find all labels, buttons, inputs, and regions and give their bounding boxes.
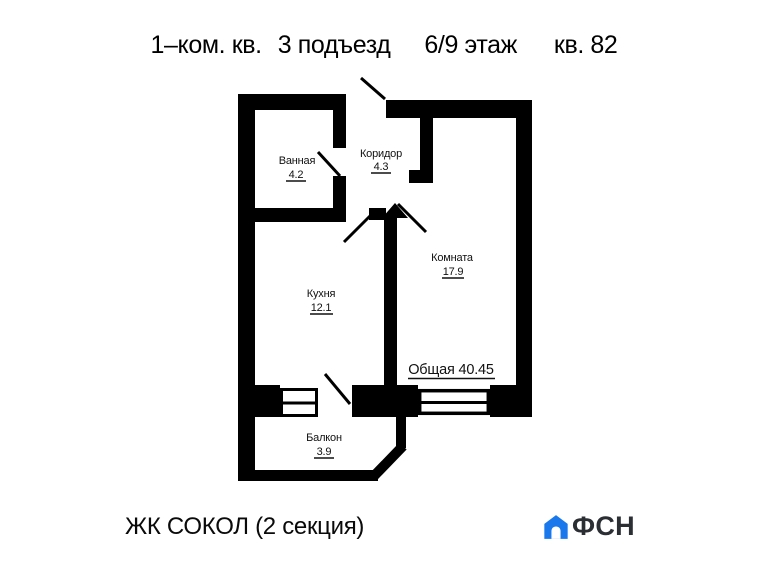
balcony-door-swing [325, 374, 350, 404]
wall-kitchen-room-stub [369, 208, 386, 220]
balcony-area: 3.9 [317, 446, 332, 458]
living-room-label: Комната [431, 252, 474, 264]
wall-left-outer [238, 94, 255, 481]
floorplan-drawing: Ванная 4.2 Коридор 4.3 Комната 17.9 Кухн… [0, 0, 768, 576]
wall-top-left [238, 94, 346, 110]
bathroom-door-swing [318, 152, 340, 176]
developer-logo: ФСН [542, 511, 635, 542]
wall-kitchen-room [384, 214, 397, 417]
floorplan-page: 1–ком. кв. 3 подъезд 6/9 этаж кв. 82 [0, 0, 768, 576]
kitchen-door-swing [344, 216, 370, 242]
wall-bathroom-bottom [238, 208, 346, 222]
project-name: ЖК СОКОЛ (2 секция) [125, 513, 364, 541]
house-icon [542, 513, 570, 541]
kitchen-area: 12.1 [311, 302, 332, 314]
balcony-label: Балкон [306, 432, 342, 444]
wall-top-right [386, 100, 532, 118]
wall-right-outer [516, 100, 532, 417]
wall-balcony-bottom [250, 470, 378, 481]
living-room-area: 17.9 [443, 266, 464, 278]
wall-balcony-chamfer [374, 446, 403, 476]
wall-corridor-room [420, 118, 433, 174]
wall-corridor-room-jamb [409, 170, 433, 183]
total-area-label: Общая 40.45 [408, 362, 494, 378]
wall-bottom-kitchen-left [238, 385, 280, 417]
wall-balcony-right [396, 417, 406, 448]
corridor-label: Коридор [360, 148, 402, 160]
wall-bottom-right-corner [490, 385, 532, 417]
logo-text: ФСН [572, 511, 635, 542]
corridor-area: 4.3 [374, 161, 389, 173]
entrance-door-swing [361, 78, 385, 99]
kitchen-label: Кухня [307, 288, 336, 300]
wall-bathroom-right-lower [333, 176, 346, 212]
bathroom-label: Ванная [279, 155, 316, 167]
bathroom-area: 4.2 [289, 169, 304, 181]
wall-bathroom-right-upper [333, 110, 346, 148]
